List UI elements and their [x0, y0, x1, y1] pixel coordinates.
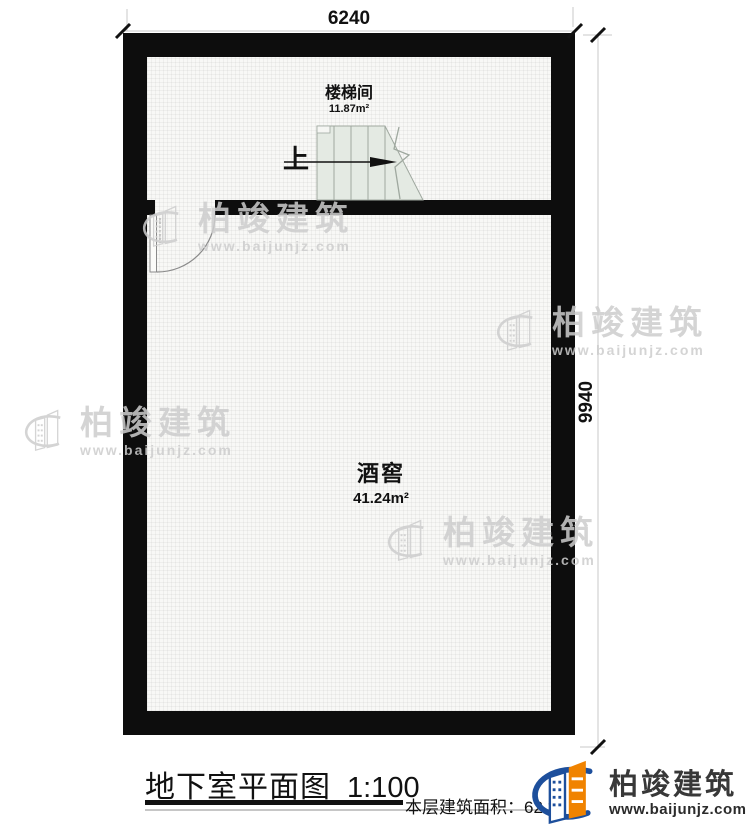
stairs-direction-label: 上 [283, 139, 309, 176]
room-label-cellar: 酒窖 41.24m² [301, 456, 461, 507]
watermark-logo-icon [20, 407, 72, 457]
watermark-name: 柏竣建筑 [552, 306, 708, 339]
brand-logo-icon [527, 758, 603, 830]
room-area: 41.24m² [301, 490, 461, 507]
brand-text: 柏竣建筑 www.baijunjz.com [609, 770, 746, 819]
room-name: 酒窖 [301, 456, 461, 488]
floor-area [147, 57, 551, 711]
interior-wall-stub [147, 200, 155, 215]
dimension-top: 6240 [299, 8, 399, 30]
room-area: 11.87m² [279, 103, 419, 115]
room-name: 楼梯间 [279, 79, 419, 103]
title-underline-thick [145, 800, 403, 805]
watermark-site: www.baijunjz.com [552, 342, 708, 358]
interior-wall [215, 200, 551, 215]
brand-name: 柏竣建筑 [609, 770, 746, 802]
dimension-right: 9940 [576, 381, 598, 423]
brand-website: www.baijunjz.com [609, 801, 746, 818]
brand-logo: 柏竣建筑 www.baijunjz.com [527, 758, 746, 830]
room-label-stairwell: 楼梯间 11.87m² [279, 79, 419, 115]
floor-area-label: 本层建筑面积： [405, 798, 524, 817]
